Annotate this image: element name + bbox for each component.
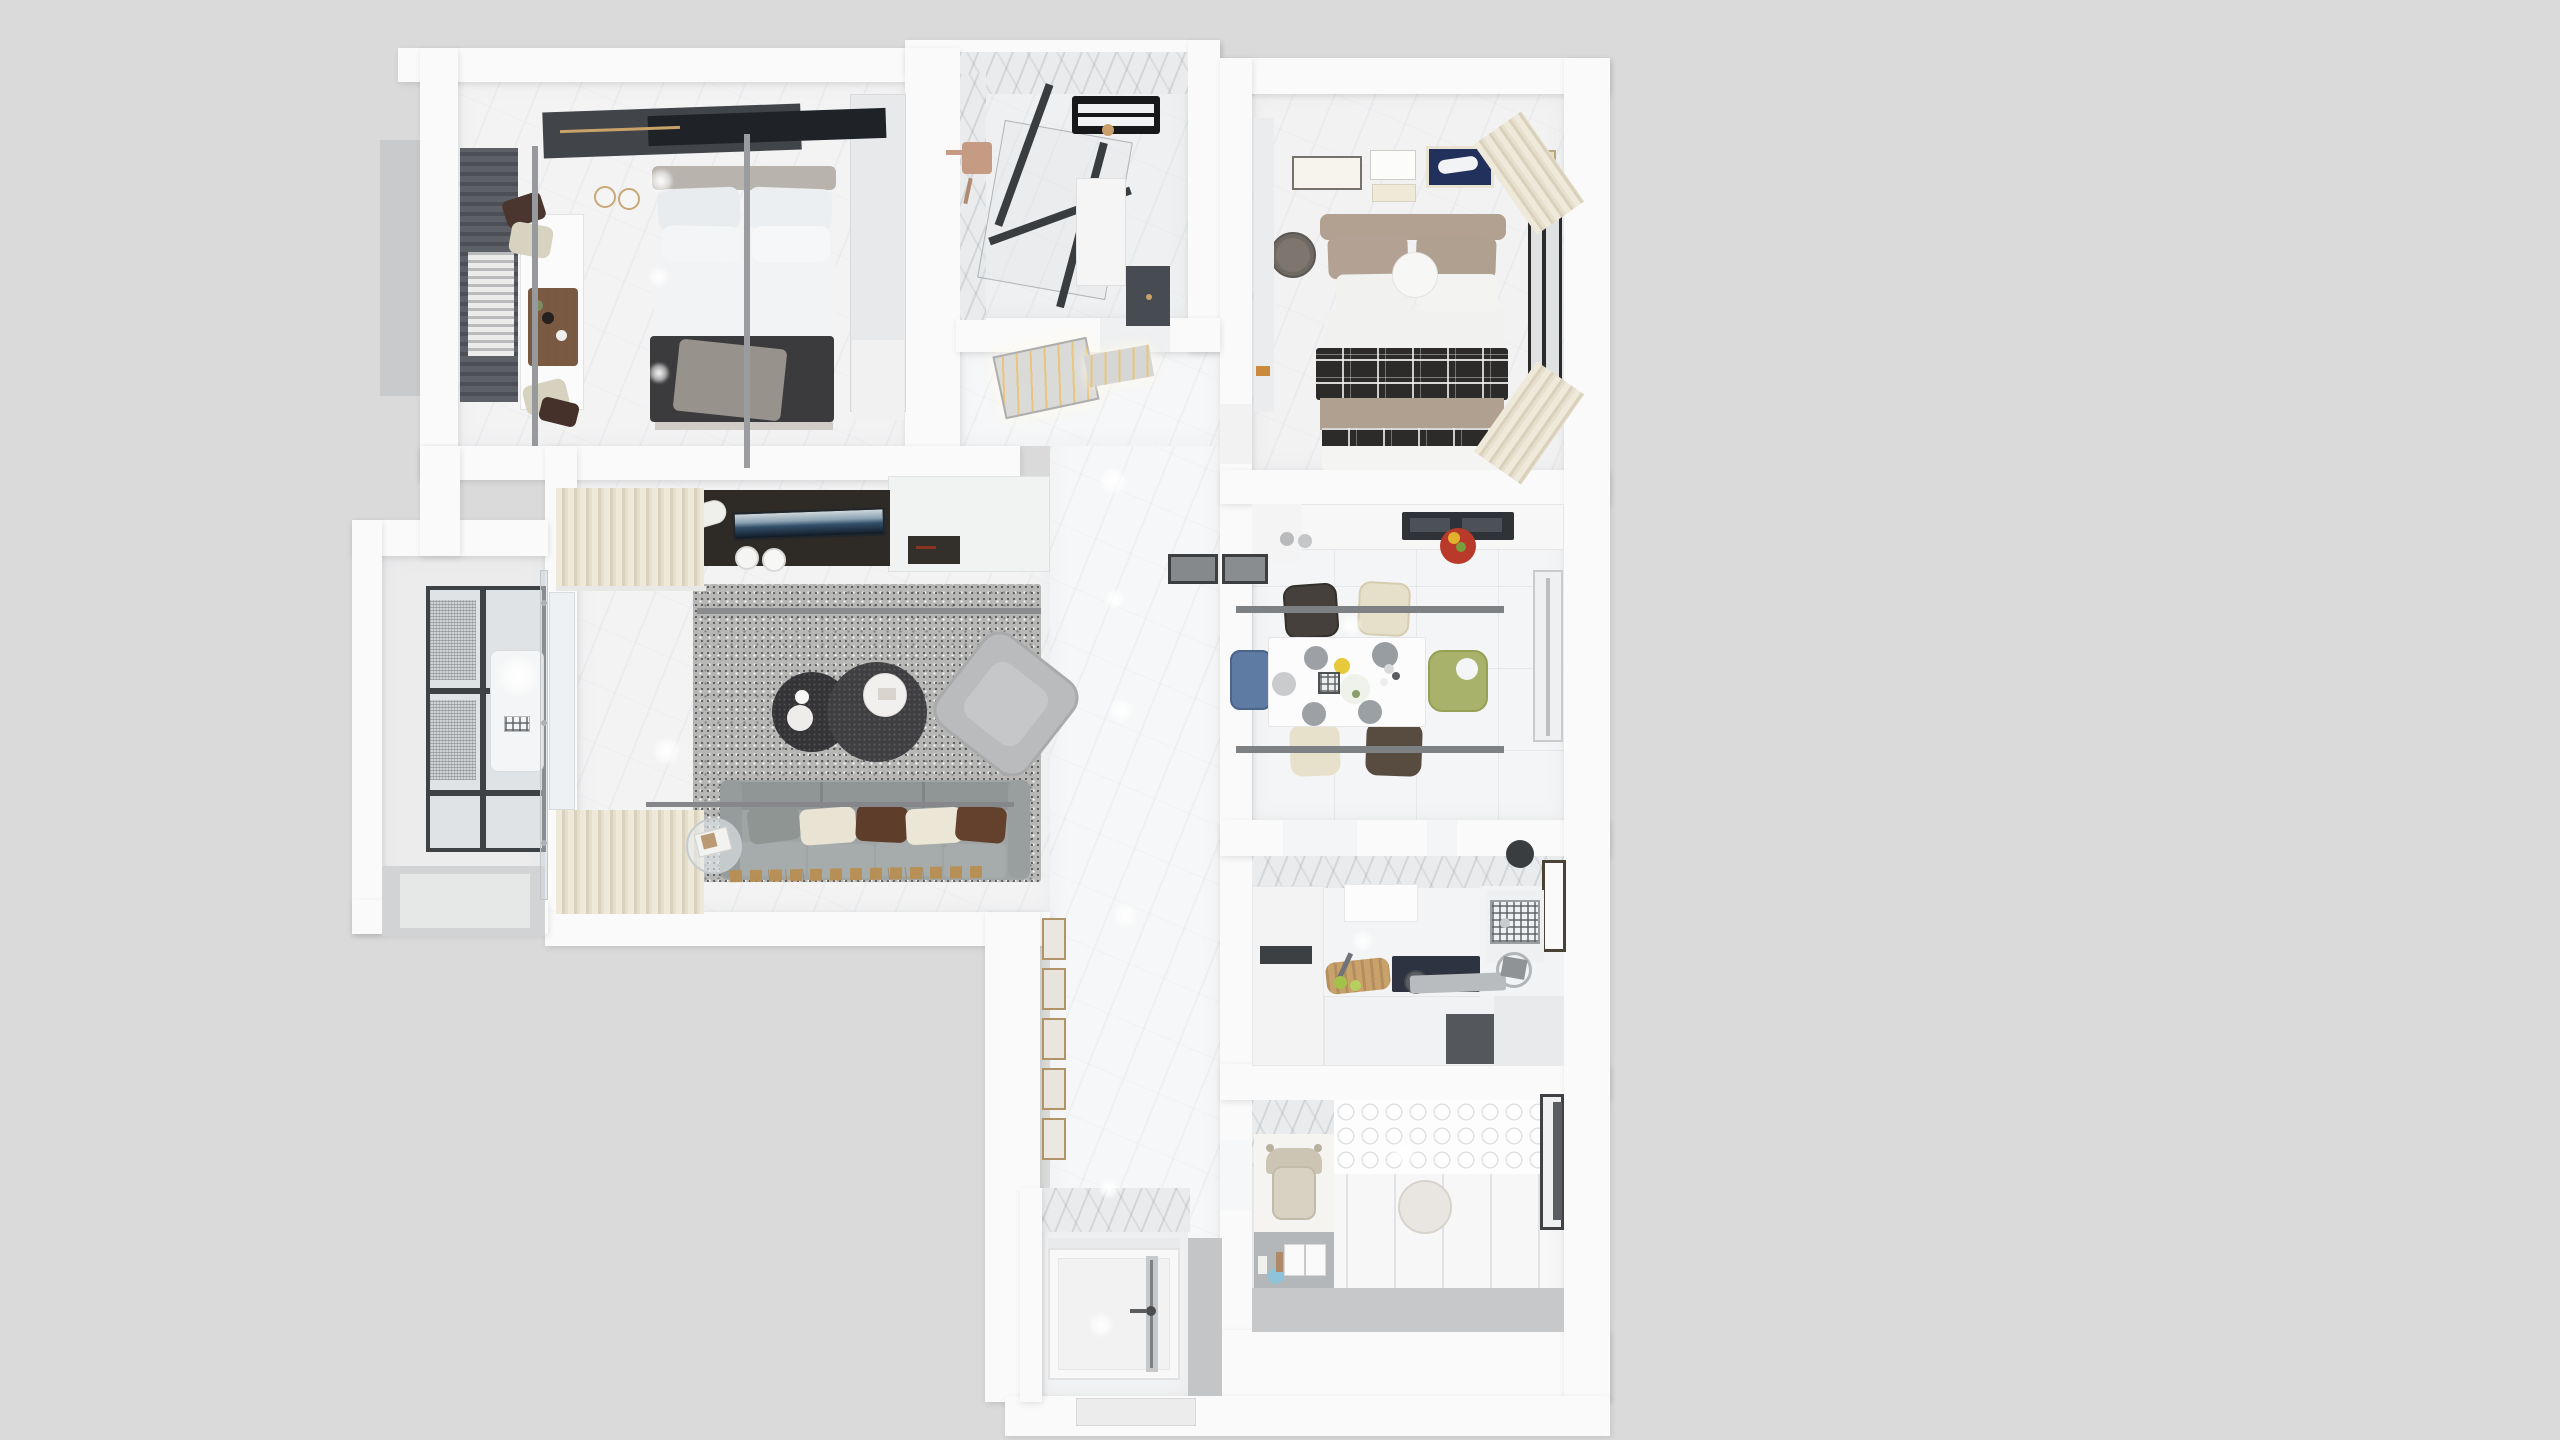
- kitchen-basket-contents: [1500, 956, 1527, 980]
- hallway-art-frame-3: [1042, 1018, 1066, 1060]
- dining-small-bowl-2: [1392, 672, 1400, 680]
- balcony-rail-post-1: [541, 600, 547, 606]
- wall-bathroom-bottom: [1220, 1330, 1610, 1400]
- kitchen-lime-2: [1350, 980, 1361, 991]
- dining-ceiling-rail-1: [1236, 606, 1504, 613]
- bedroom-2-gold-decor: [1256, 366, 1270, 376]
- shower-room-vanity-handle: [1146, 294, 1152, 300]
- entry-shower-glow: [1088, 1312, 1114, 1338]
- wall-bedroom-1-bottom: [420, 446, 1020, 480]
- hallway-ceiling-vent-1: [1168, 554, 1218, 584]
- balcony-mullion-vertical: [480, 586, 486, 852]
- living-sofa-pillow-cream-1: [799, 806, 857, 846]
- bedroom-2-art-frame-1: [1292, 156, 1362, 190]
- wall-bedroom-1-shower: [905, 48, 960, 478]
- ledge-left-bedroom-1: [380, 140, 420, 396]
- pillar-entry-shower-east: [1188, 1238, 1222, 1396]
- hallway-art-frame-1: [1042, 918, 1066, 960]
- living-curtain-rod: [556, 586, 706, 591]
- balcony-glass-railing: [540, 570, 548, 900]
- threshold-bathroom-door: [1220, 1140, 1252, 1210]
- shower-head-arm: [946, 150, 972, 155]
- bedroom-1-wine-bottle: [542, 312, 554, 324]
- shower-room-cabinet: [1076, 178, 1126, 286]
- wall-east-outer: [1564, 58, 1610, 1400]
- bedroom-2-plaid-blanket-2: [1322, 428, 1504, 446]
- living-sofa-pillow-cream-2: [905, 807, 963, 846]
- wall-connector-left: [420, 446, 460, 556]
- bathroom-tile-wall: [1334, 1100, 1564, 1174]
- living-sphere-lamp-2: [762, 548, 786, 572]
- dining-plate-3: [1302, 702, 1326, 726]
- bedroom-2-round-decor: [1392, 252, 1438, 298]
- bedroom-1-sconce-2: [618, 188, 640, 210]
- bedroom-1-glow-c: [648, 362, 670, 384]
- dining-wall-knob-1: [1280, 532, 1294, 546]
- wall-dining-kitchen: [1220, 820, 1610, 856]
- entry-shower-handle-stem: [1130, 1309, 1146, 1313]
- kitchen-window: [1542, 860, 1566, 952]
- balcony-heater-glow: [496, 654, 540, 698]
- dining-window-bar: [1546, 578, 1550, 736]
- dining-hood-grille-1: [1410, 518, 1450, 532]
- bathroom-ledge-bottom: [1252, 1288, 1564, 1332]
- wall-living-bottom: [545, 912, 1050, 946]
- bedroom-2-hat: [1276, 238, 1310, 272]
- living-ceiling-rail-1: [697, 608, 1041, 614]
- hallway-glow-3: [1108, 698, 1134, 724]
- wall-shower-right: [1188, 40, 1220, 352]
- dining-plate-4: [1358, 700, 1382, 724]
- floor-plan-render: [0, 0, 2560, 1440]
- kitchen-glow: [1352, 930, 1374, 952]
- living-incense: [916, 546, 936, 549]
- bedroom-1-bed-pillow-4: [752, 226, 830, 262]
- kitchen-dish-rack: [1490, 900, 1540, 944]
- dining-ceiling-rail-2: [1236, 746, 1504, 753]
- balcony-rail-post-3: [541, 840, 547, 846]
- dining-bread-basket: [1318, 672, 1340, 694]
- balcony-screen-1: [430, 600, 476, 680]
- towel-radiator-slat-1: [1078, 104, 1154, 113]
- bedroom-2-art-frame-2: [1370, 150, 1416, 180]
- hallway-glow-4: [1112, 902, 1138, 928]
- shower-head-plate: [962, 142, 992, 174]
- balcony-screen-2: [430, 700, 476, 780]
- bedroom-1-bed-pillow-2: [747, 187, 832, 232]
- dining-wall-knob-2: [1298, 534, 1312, 548]
- wall-left-bedroom-1: [420, 48, 458, 480]
- bathroom-toiletry-brush: [1276, 1252, 1283, 1272]
- balcony-lower-ledge-inner: [400, 874, 530, 928]
- balcony-mullion-horizontal-2: [426, 790, 546, 796]
- living-tray-item: [878, 688, 896, 700]
- hallway-glow-5: [1098, 1178, 1120, 1200]
- living-sofa-arm-right: [1008, 780, 1030, 878]
- dining-flower-leaf: [1352, 690, 1360, 698]
- living-cylinder-small: [787, 705, 813, 731]
- living-curtain-top: [556, 488, 704, 588]
- living-tv-flat: [733, 507, 886, 540]
- bedroom-1-rail-1: [532, 146, 538, 446]
- wall-bedroom-2-bottom: [1220, 470, 1610, 504]
- bedroom-1-rail-2: [744, 134, 750, 468]
- living-window-glass: [549, 592, 575, 810]
- dining-chair-blue: [1230, 650, 1272, 710]
- bathroom-chair-leg-1: [1266, 1144, 1274, 1152]
- living-sphere-lamp-1: [735, 546, 759, 570]
- entry-shower-handle: [1146, 1306, 1156, 1316]
- towel-radiator: [1072, 96, 1160, 134]
- hallway-art-frame-4: [1042, 1068, 1066, 1110]
- bathroom-glow: [1390, 1140, 1416, 1166]
- kitchen-faucet: [1500, 918, 1510, 928]
- towel-radiator-slat-2: [1078, 117, 1154, 126]
- living-dark-mat: [908, 536, 960, 564]
- bedroom-1-wardrobe-lower: [852, 340, 904, 420]
- living-sofa-pillow-brown-1: [855, 805, 909, 844]
- living-sofa-pillow-gray: [746, 803, 803, 846]
- dining-flower-centerpiece: [1340, 674, 1370, 704]
- living-curtain-bottom: [556, 810, 704, 914]
- kitchen-kettle: [1506, 840, 1534, 868]
- dining-fruit-green: [1456, 542, 1466, 552]
- hallway-art-frame-2: [1042, 968, 1066, 1010]
- bathroom-chair-leg-2: [1314, 1144, 1322, 1152]
- dining-chair-olive: [1428, 650, 1488, 712]
- threshold-dining-door-1: [1283, 820, 1357, 856]
- living-cylinder-dot: [795, 690, 809, 704]
- bedroom-1-cup: [556, 330, 567, 341]
- bedroom-2-art-frame-2b: [1372, 184, 1416, 202]
- bedroom-2-taupe-runner: [1320, 398, 1504, 430]
- bedroom-1-sconce-1: [594, 186, 616, 208]
- entry-shower-step: [1048, 1238, 1180, 1248]
- dining-glow: [1340, 614, 1362, 636]
- hallway-ceiling-vent-2: [1222, 554, 1268, 584]
- bedroom-2-plaid-blanket-1: [1316, 348, 1508, 400]
- dining-plate-1: [1304, 646, 1328, 670]
- bathroom-window-reveal: [1553, 1102, 1562, 1220]
- dining-chair-olive-hole: [1456, 658, 1478, 680]
- dining-charger-plate: [1272, 672, 1296, 696]
- kitchen-counter-left: [1252, 886, 1324, 1066]
- bathroom-chair-seat: [1272, 1166, 1316, 1220]
- hallway-glow-1: [1098, 466, 1128, 496]
- living-ceiling-rail-2: [646, 802, 1014, 807]
- shower-room-marble-wall-top: [960, 52, 1188, 94]
- living-glow: [652, 736, 682, 766]
- bedroom-1-glow-a: [648, 168, 674, 194]
- kitchen-lime-1: [1334, 976, 1347, 989]
- wall-entry-shower-west: [1020, 1188, 1042, 1402]
- entry-door-leaf: [1076, 1398, 1196, 1426]
- hallway-glow-2: [1104, 588, 1126, 610]
- dining-hood-grille-2: [1462, 518, 1502, 532]
- bathroom-stool: [1398, 1180, 1452, 1234]
- threshold-dining-door-2: [1427, 820, 1457, 856]
- hallway-art-frame-5: [1042, 1118, 1066, 1160]
- living-sofa-pillow-brown-2: [955, 804, 1008, 844]
- dining-small-bowl-3: [1380, 678, 1388, 686]
- balcony-heater-vents: [504, 716, 530, 732]
- kitchen-long-tray: [1410, 972, 1507, 993]
- bathroom-toiletry-tube: [1258, 1256, 1267, 1274]
- wall-balcony-left: [352, 520, 382, 934]
- bedroom-1-striped-blind: [468, 252, 514, 356]
- bathroom-book-spine: [1304, 1244, 1306, 1276]
- wall-top-bedroom-1: [398, 48, 956, 82]
- bedroom-1-bed-throw-gray: [673, 339, 788, 422]
- bedroom-1-glow-b: [648, 266, 670, 288]
- kitchen-hood-box: [1344, 884, 1418, 922]
- towel-hook-gold: [1102, 124, 1114, 136]
- kitchen-counter-corner-gray: [1494, 996, 1564, 1066]
- balcony-rail-post-2: [541, 720, 547, 726]
- bedroom-1-bed-pillow-3: [662, 225, 741, 262]
- kitchen-dark-tray: [1260, 946, 1312, 964]
- wall-top-bedroom-2: [1220, 58, 1610, 94]
- kitchen-appliance-recess: [1446, 1014, 1494, 1064]
- threshold-bedroom-2-door: [1220, 404, 1252, 464]
